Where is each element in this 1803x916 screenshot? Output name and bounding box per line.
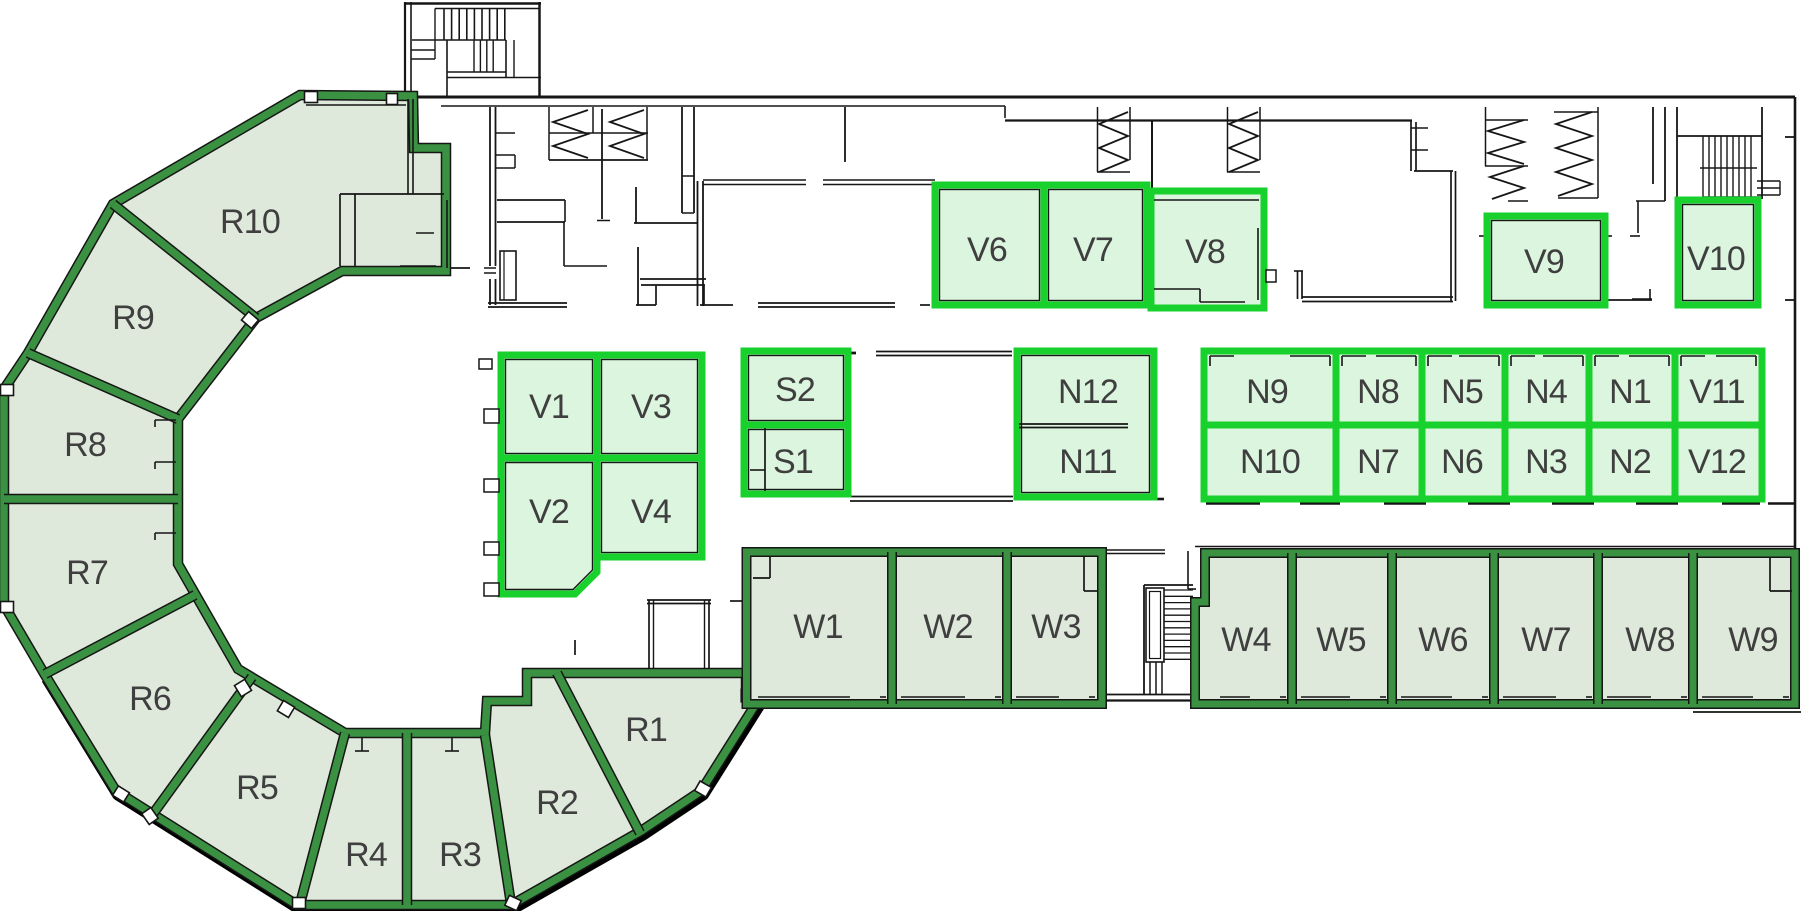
svg-text:R10: R10 xyxy=(220,203,280,241)
svg-text:N1: N1 xyxy=(1609,373,1651,411)
svg-text:R2: R2 xyxy=(536,784,578,822)
svg-text:S2: S2 xyxy=(775,371,815,409)
svg-text:W1: W1 xyxy=(793,608,842,646)
svg-text:R7: R7 xyxy=(66,554,108,592)
svg-text:W2: W2 xyxy=(923,608,972,646)
svg-text:N10: N10 xyxy=(1240,443,1300,481)
svg-text:W6: W6 xyxy=(1418,621,1467,659)
svg-text:W3: W3 xyxy=(1031,608,1080,646)
svg-text:R3: R3 xyxy=(439,836,481,874)
svg-text:V12: V12 xyxy=(1688,443,1746,481)
svg-text:N7: N7 xyxy=(1357,443,1399,481)
svg-text:V1: V1 xyxy=(529,388,569,426)
svg-text:N3: N3 xyxy=(1525,443,1567,481)
svg-text:V2: V2 xyxy=(529,493,569,531)
svg-text:V4: V4 xyxy=(631,493,671,531)
svg-text:R9: R9 xyxy=(112,299,154,337)
svg-text:R6: R6 xyxy=(129,680,171,718)
svg-text:V11: V11 xyxy=(1689,373,1745,411)
svg-text:N5: N5 xyxy=(1441,373,1483,411)
svg-text:W4: W4 xyxy=(1221,621,1270,659)
svg-text:V9: V9 xyxy=(1524,243,1564,281)
svg-text:W7: W7 xyxy=(1521,621,1570,659)
svg-text:V8: V8 xyxy=(1185,233,1225,271)
svg-text:S1: S1 xyxy=(773,443,813,481)
svg-text:N6: N6 xyxy=(1441,443,1483,481)
svg-text:V3: V3 xyxy=(631,388,671,426)
svg-text:R5: R5 xyxy=(236,769,278,807)
svg-text:W9: W9 xyxy=(1728,621,1777,659)
svg-text:N2: N2 xyxy=(1609,443,1651,481)
svg-text:W8: W8 xyxy=(1625,621,1674,659)
svg-text:N4: N4 xyxy=(1525,373,1567,411)
svg-text:N12: N12 xyxy=(1058,373,1118,411)
svg-text:N11: N11 xyxy=(1059,443,1116,481)
svg-text:V7: V7 xyxy=(1073,231,1113,269)
svg-text:V10: V10 xyxy=(1687,240,1745,278)
svg-text:R8: R8 xyxy=(64,426,106,464)
svg-text:N8: N8 xyxy=(1357,373,1399,411)
svg-text:W5: W5 xyxy=(1316,621,1365,659)
svg-text:R4: R4 xyxy=(345,836,387,874)
svg-text:R1: R1 xyxy=(625,711,667,749)
svg-text:N9: N9 xyxy=(1246,373,1288,411)
svg-text:V6: V6 xyxy=(967,231,1007,269)
